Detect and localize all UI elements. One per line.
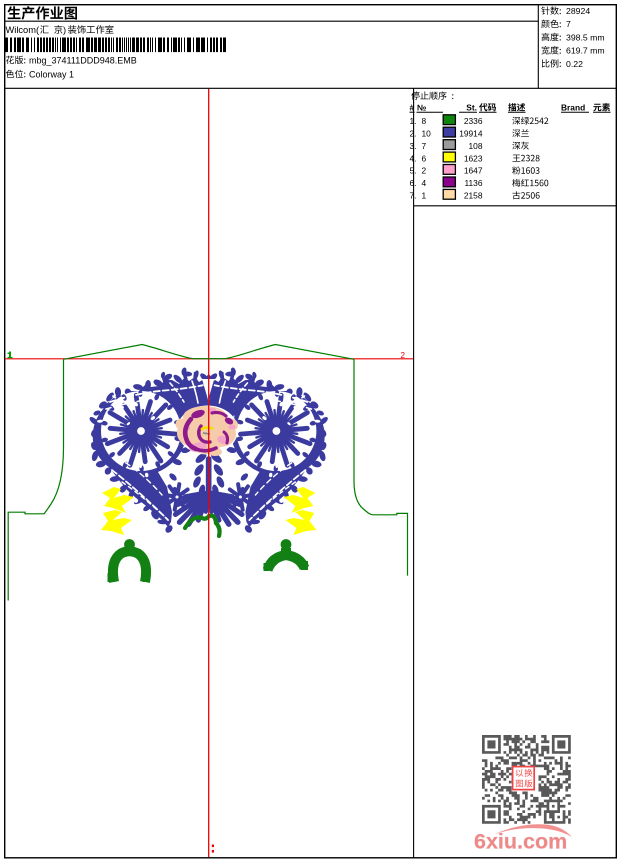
svg-text:6: 6 — [422, 153, 427, 163]
svg-text:8: 8 — [422, 116, 427, 126]
svg-text:1.: 1. — [410, 116, 417, 126]
svg-text:4.: 4. — [410, 153, 417, 163]
svg-text:2158: 2158 — [464, 191, 483, 201]
svg-text:2: 2 — [401, 351, 406, 360]
svg-text:7: 7 — [566, 19, 571, 29]
svg-text:3.: 3. — [410, 141, 417, 151]
svg-text:7.: 7. — [410, 191, 417, 201]
svg-text:0.22: 0.22 — [566, 59, 583, 69]
svg-text:mbg_374111DDD948.EMB: mbg_374111DDD948.EMB — [29, 55, 137, 65]
svg-text:№: № — [417, 103, 427, 113]
svg-text:St.: St. — [466, 103, 477, 113]
svg-text:398.5 mm: 398.5 mm — [566, 32, 605, 42]
svg-text:): ) — [63, 25, 66, 35]
svg-text:619.7 mm: 619.7 mm — [566, 46, 605, 56]
svg-text:1623: 1623 — [464, 153, 483, 163]
svg-text:2336: 2336 — [464, 116, 483, 126]
svg-text:Wilcom(: Wilcom( — [6, 25, 40, 35]
svg-text:Colorway 1: Colorway 1 — [29, 69, 74, 79]
svg-text:4: 4 — [422, 178, 427, 188]
svg-text:#: # — [410, 103, 415, 113]
svg-text:1136: 1136 — [464, 178, 482, 188]
svg-text:Brand: Brand — [561, 103, 585, 113]
svg-text:19914: 19914 — [459, 128, 483, 138]
svg-text:6.: 6. — [410, 178, 417, 188]
svg-text:7: 7 — [422, 141, 427, 151]
svg-text:5.: 5. — [410, 166, 417, 176]
svg-text:108: 108 — [469, 141, 483, 151]
svg-text:28924: 28924 — [566, 6, 590, 16]
svg-text:2.: 2. — [410, 128, 417, 138]
svg-text:1: 1 — [422, 191, 427, 201]
svg-text:2: 2 — [422, 166, 427, 176]
svg-text:10: 10 — [422, 128, 432, 138]
svg-text:6xiu.com: 6xiu.com — [474, 830, 567, 854]
svg-text:1647: 1647 — [464, 166, 483, 176]
